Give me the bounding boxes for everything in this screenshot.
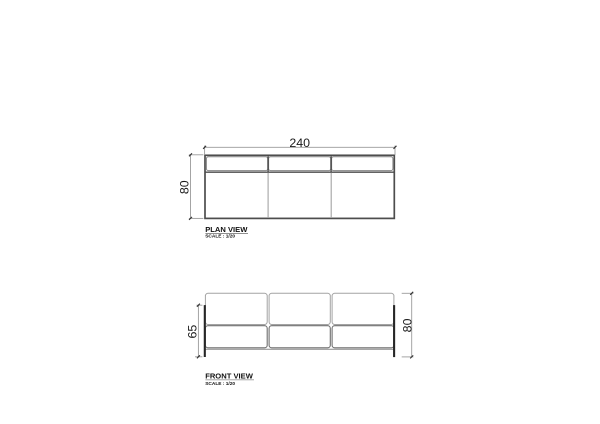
svg-text:65: 65 [186,325,200,339]
svg-text:80: 80 [401,318,415,332]
svg-text:240: 240 [289,136,310,150]
svg-text:SCALE : 1/20: SCALE : 1/20 [205,381,235,387]
svg-text:PLAN VIEW: PLAN VIEW [205,225,248,234]
svg-text:80: 80 [178,180,192,194]
svg-text:SCALE : 1/20: SCALE : 1/20 [205,234,235,240]
